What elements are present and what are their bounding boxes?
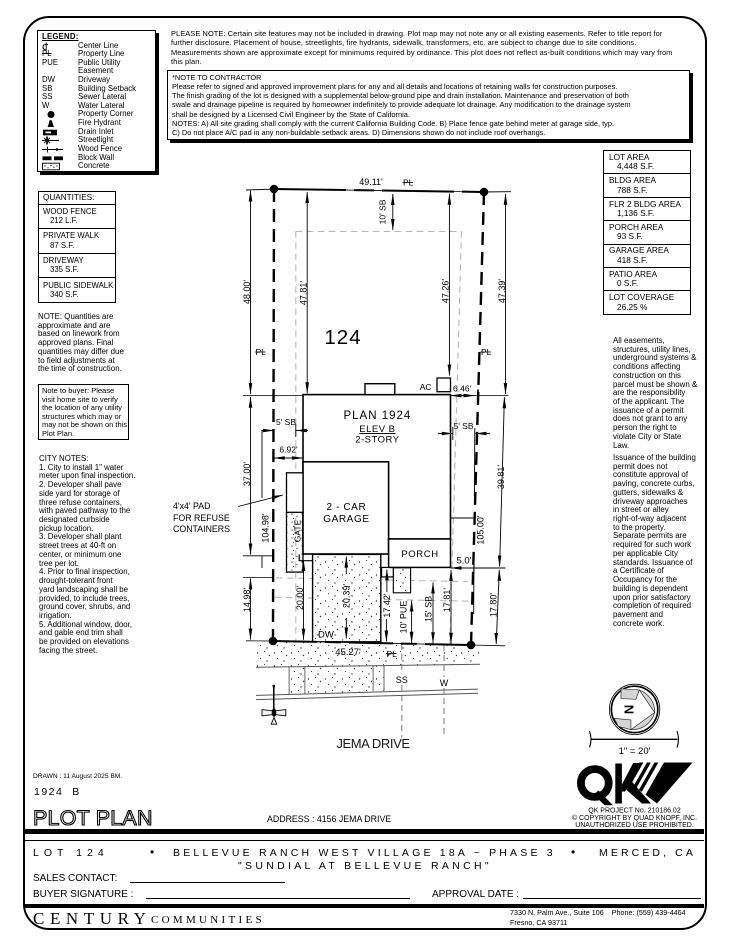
svg-text:JEMA DRIVE: JEMA DRIVE	[336, 736, 410, 751]
svg-text:N: N	[622, 705, 637, 714]
svg-text:PL: PL	[387, 649, 398, 659]
svg-text:ELEV B: ELEV B	[359, 424, 395, 435]
svg-text:20.00': 20.00'	[295, 586, 305, 611]
svg-text:105.00': 105.00'	[476, 515, 486, 545]
svg-text:10' SB: 10' SB	[378, 199, 388, 224]
svg-text:UNAUTHORIZED USE PROHIBITED.: UNAUTHORIZED USE PROHIBITED.	[575, 822, 694, 829]
svg-text:49.11': 49.11'	[359, 177, 383, 187]
svg-text:2 - CAR: 2 - CAR	[327, 502, 367, 513]
svg-text:15' SB: 15' SB	[424, 596, 434, 622]
svg-text:AC: AC	[420, 382, 432, 392]
svg-text:124: 124	[324, 326, 361, 349]
svg-text:17.81': 17.81'	[442, 588, 452, 613]
svg-text:2-STORY: 2-STORY	[355, 435, 399, 446]
svg-text:GATE: GATE	[293, 519, 303, 542]
svg-text:48.00': 48.00'	[242, 280, 252, 305]
svg-text:5.0': 5.0'	[457, 556, 472, 567]
svg-text:104.98': 104.98'	[261, 513, 271, 543]
svg-text:6.92': 6.92'	[279, 445, 298, 455]
svg-text:© COPYRIGHT BY QUAD KNOPF, INC: © COPYRIGHT BY QUAD KNOPF, INC.	[572, 814, 697, 822]
svg-text:PLAN 1924: PLAN 1924	[343, 410, 411, 422]
svg-text:45.27': 45.27'	[335, 647, 361, 658]
svg-text:QK PROJECT No. 210186.02: QK PROJECT No. 210186.02	[588, 808, 681, 815]
svg-text:14.98': 14.98'	[242, 588, 252, 613]
svg-text:5' SB: 5' SB	[453, 421, 473, 431]
svg-text:39.81': 39.81'	[496, 465, 506, 490]
svg-text:5' SB: 5' SB	[276, 417, 296, 427]
svg-text:37.00': 37.00'	[242, 462, 252, 487]
svg-text:SS: SS	[396, 675, 408, 685]
svg-text:1" = 20': 1" = 20'	[619, 746, 651, 757]
svg-text:47.26': 47.26'	[441, 279, 451, 304]
svg-text:PORCH: PORCH	[401, 549, 438, 560]
svg-text:20.39': 20.39'	[342, 584, 352, 609]
svg-text:DW: DW	[318, 630, 334, 641]
svg-text:6.46': 6.46'	[453, 384, 472, 394]
svg-text:17.42': 17.42'	[382, 593, 392, 618]
svg-text:47.81': 47.81'	[299, 281, 309, 306]
svg-text:17.80': 17.80'	[489, 593, 499, 618]
svg-text:W: W	[440, 678, 449, 688]
svg-text:47.39': 47.39'	[497, 279, 507, 304]
svg-text:10' PUE: 10' PUE	[399, 601, 409, 634]
svg-text:GARAGE: GARAGE	[323, 514, 369, 525]
